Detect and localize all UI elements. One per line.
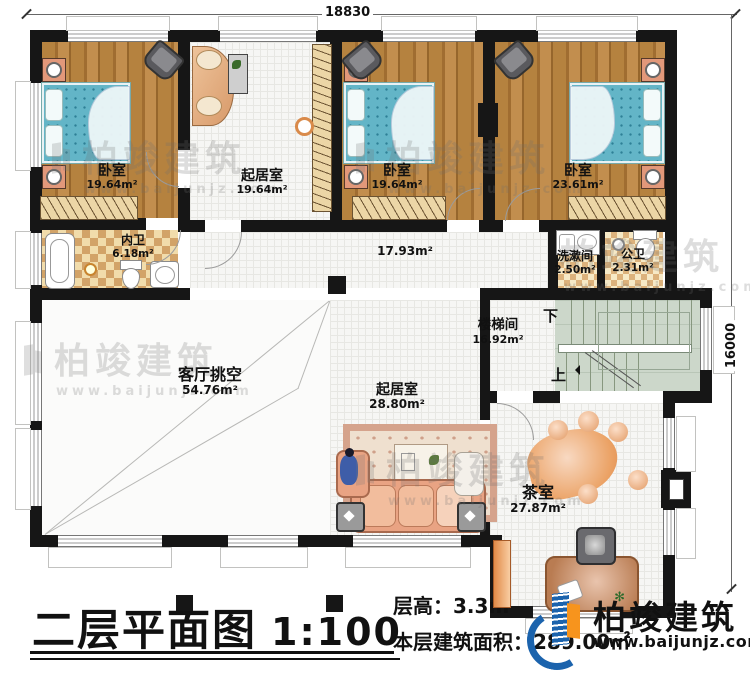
bed — [570, 83, 664, 163]
cabinet — [493, 540, 511, 608]
room-name: 起居室 — [352, 382, 442, 398]
room-area: 19.64m² — [67, 179, 157, 192]
window — [58, 535, 162, 547]
tea-cushion — [578, 411, 599, 432]
tea-cushion — [628, 470, 648, 490]
bed — [344, 83, 434, 163]
speaker — [457, 502, 486, 532]
window — [68, 30, 168, 42]
desk-plant-icon — [232, 60, 241, 69]
floor-area-label: 本层建筑面积： — [393, 630, 533, 654]
window — [30, 323, 42, 421]
room-name: 洗漱间 — [549, 250, 601, 264]
door-jamb — [492, 103, 498, 137]
door-knob-detail — [295, 117, 314, 136]
window-sill — [48, 547, 172, 568]
wardrobe — [568, 196, 666, 220]
window-sill — [15, 428, 31, 510]
room-area: 6.18m² — [98, 248, 168, 260]
nightstand — [42, 165, 66, 189]
drawing-scale: 1:100 — [271, 610, 402, 654]
shower-drain-icon — [84, 263, 97, 276]
tea-cushion — [608, 422, 628, 442]
window-sill — [66, 16, 170, 31]
sink-counter — [150, 261, 179, 288]
speaker-cone — [464, 510, 475, 521]
wall-row1-a — [190, 220, 205, 232]
person-head — [345, 448, 354, 457]
stair-outline — [598, 312, 690, 370]
wall-bed1-bottom-b — [182, 218, 190, 230]
room-name: 起居室 — [212, 168, 312, 184]
room-label-stairwell: 楼梯间 16.92m² — [458, 318, 538, 346]
chair-seat — [585, 535, 605, 555]
window-sill — [218, 16, 318, 31]
title-underline — [30, 651, 394, 654]
desk-chair — [196, 50, 222, 70]
speaker-cone — [343, 510, 354, 521]
window — [30, 233, 42, 285]
window-sill — [345, 547, 471, 568]
room-name: 客厅挑空 — [150, 366, 270, 384]
company-logo: 柏竣建筑 www.baijunjz.com — [527, 588, 750, 662]
floorplan-page: { "annotations": { "dim_top": "18830", "… — [0, 0, 750, 675]
room-area: 23.61m² — [533, 179, 623, 192]
bathtub — [45, 233, 75, 289]
room-name: 楼梯间 — [458, 318, 538, 334]
room-area: 19.64m² — [352, 179, 442, 192]
study-wardrobe — [312, 44, 332, 212]
company-logo-text: 柏竣建筑 www.baijunjz.com — [593, 601, 750, 650]
room-name: 内卫 — [98, 234, 168, 248]
drawing-title-row: 二层平面图 1:100 — [32, 596, 402, 658]
company-name: 柏竣建筑 — [593, 601, 750, 634]
room-label-bedroom2: 卧室 19.64m² — [352, 163, 442, 192]
window-sill — [220, 547, 308, 568]
wall-stairwell-top — [480, 288, 712, 300]
window — [30, 83, 42, 167]
door-jamb — [478, 103, 484, 137]
room-label-publicbath: 公卫 2.31m² — [606, 248, 660, 274]
window — [663, 510, 675, 555]
right-dimension-value: 16000 — [724, 320, 739, 371]
pillow — [45, 125, 63, 157]
tea-cushion — [548, 420, 568, 440]
room-label-hallway: 17.93m² — [370, 245, 440, 259]
window — [220, 30, 316, 42]
room-area: 54.76m² — [150, 384, 270, 398]
room-name: 公卫 — [606, 248, 660, 262]
speaker — [336, 502, 365, 532]
washroom-sink-basin — [577, 234, 597, 250]
wall-stairhall-bottom-b — [533, 391, 560, 403]
nightstand — [641, 58, 665, 82]
floor-height-label: 层高： — [393, 594, 453, 618]
room-area: 27.87m² — [498, 502, 578, 516]
window — [228, 535, 298, 547]
window — [383, 30, 475, 42]
room-area: 2.31m² — [606, 262, 660, 274]
drawing-title: 二层平面图 — [32, 596, 257, 658]
pillow — [643, 89, 661, 121]
window-sill — [676, 416, 696, 472]
window — [663, 418, 675, 468]
stair-direction-arrow — [570, 365, 580, 375]
desk-chair-dark — [576, 527, 616, 565]
company-logo-icon — [527, 588, 589, 662]
wardrobe — [40, 196, 138, 220]
window-sill — [676, 508, 696, 559]
window-sill — [536, 16, 638, 31]
logo-building-orange — [567, 603, 580, 639]
stair-down-label: 下 — [543, 305, 558, 326]
room-label-study: 起居室 19.64m² — [212, 168, 312, 197]
floor-height-line: 层高：3.3m — [393, 590, 509, 619]
desk-chair — [196, 96, 222, 116]
room-area: 17.93m² — [370, 245, 440, 259]
wall-tea-divider-a — [480, 403, 490, 420]
window — [353, 535, 461, 547]
pillow — [45, 89, 63, 121]
room-area: 16.92m² — [458, 334, 538, 347]
window-sill — [15, 231, 31, 289]
room-label-tearoom: 茶室 27.87m² — [498, 484, 578, 516]
bed — [42, 83, 130, 163]
room-label-bedroom3: 卧室 23.61m² — [533, 163, 623, 192]
wall-row1-c — [479, 220, 503, 232]
window-sill — [15, 321, 31, 425]
person-figure — [340, 455, 358, 485]
wall-right-upper — [665, 30, 677, 300]
tea-cushion — [578, 484, 598, 504]
nightstand — [641, 165, 665, 189]
room-label-void: 客厅挑空 54.76m² — [150, 366, 270, 398]
sink-basin — [155, 266, 175, 284]
dimension-line — [731, 14, 732, 592]
table-plant — [429, 455, 439, 465]
stair-up-label: 上 — [551, 364, 566, 385]
pillow — [643, 125, 661, 157]
chaise-right — [454, 452, 484, 496]
room-area: 2.50m² — [549, 264, 601, 276]
nightstand — [42, 58, 66, 82]
dimension-line — [25, 14, 737, 15]
column — [328, 276, 346, 294]
pillow — [347, 89, 365, 121]
window — [700, 308, 712, 370]
room-label-innerbath: 内卫 6.18m² — [98, 234, 168, 260]
room-name: 茶室 — [498, 484, 578, 502]
wall-row1-b — [241, 220, 447, 232]
wall-bed1-right-a — [178, 30, 190, 150]
bathtub-basin — [50, 239, 69, 283]
title-underline-2 — [30, 658, 400, 660]
company-website: www.baijunjz.com — [593, 634, 750, 650]
window — [538, 30, 636, 42]
wall-innerbath-bottom — [30, 288, 190, 300]
hallway-floor — [190, 232, 548, 288]
sofa-cushion — [398, 485, 434, 527]
room-name: 卧室 — [533, 163, 623, 179]
room-area: 19.64m² — [212, 184, 312, 197]
top-dimension-value: 18830 — [322, 5, 373, 20]
chimney-flue — [669, 479, 684, 500]
room-name: 卧室 — [67, 163, 157, 179]
room-area: 28.80m² — [352, 398, 442, 412]
table-books — [401, 453, 415, 471]
window — [30, 430, 42, 506]
room-name: 卧室 — [352, 163, 442, 179]
pillow — [347, 125, 365, 157]
window-sill — [15, 81, 31, 171]
window-sill — [381, 16, 477, 31]
wall-stairhall-bottom-a — [480, 391, 497, 403]
wardrobe — [352, 196, 446, 220]
room-label-living: 起居室 28.80m² — [352, 382, 442, 412]
room-label-bedroom1: 卧室 19.64m² — [67, 163, 157, 192]
room-label-washroom: 洗漱间 2.50m² — [549, 250, 601, 276]
